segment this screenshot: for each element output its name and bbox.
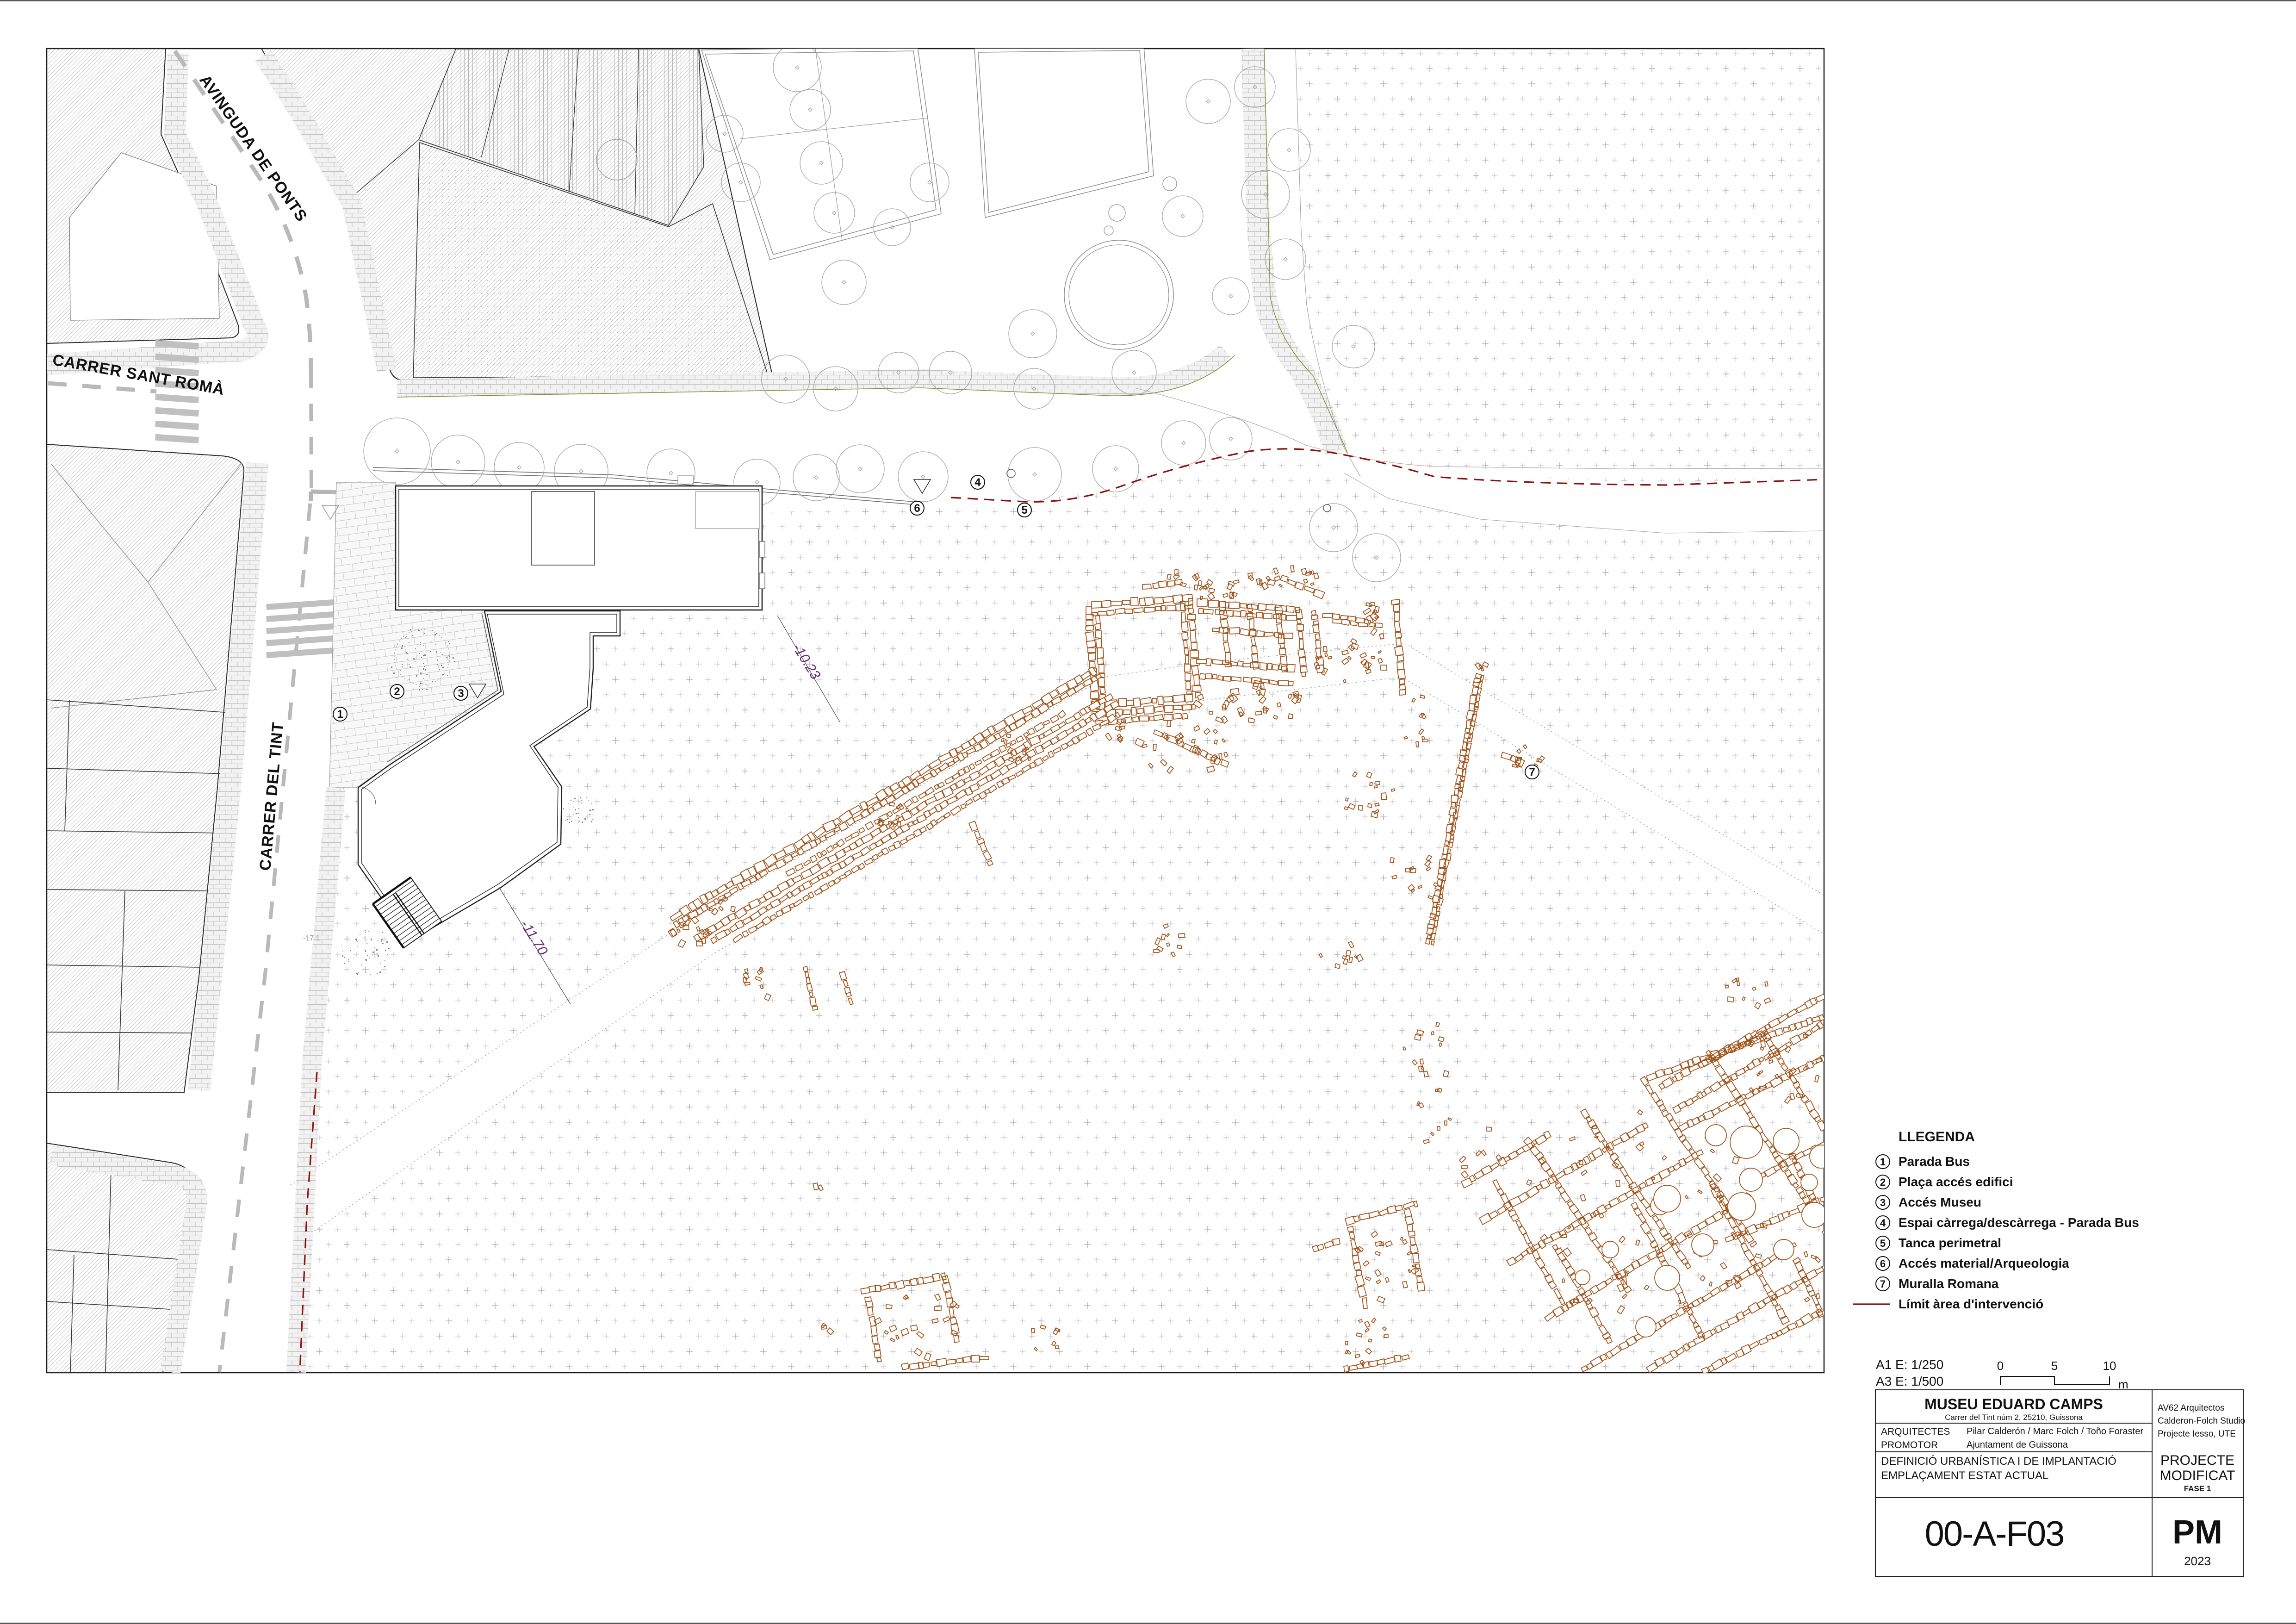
svg-text:-17.1: -17.1 <box>303 934 320 942</box>
svg-text:Límit àrea d'intervenció: Límit àrea d'intervenció <box>1899 1297 2043 1311</box>
svg-text:2: 2 <box>394 685 400 698</box>
svg-text:5: 5 <box>1880 1238 1886 1249</box>
svg-text:AV62 Arquitectos: AV62 Arquitectos <box>2158 1403 2224 1413</box>
svg-text:A3 E: 1/500: A3 E: 1/500 <box>1876 1374 1943 1388</box>
svg-text:FASE 1: FASE 1 <box>2184 1484 2211 1493</box>
svg-text:ARQUITECTES: ARQUITECTES <box>1881 1426 1950 1437</box>
svg-text:EMPLAÇAMENT ESTAT ACTUAL: EMPLAÇAMENT ESTAT ACTUAL <box>1881 1469 2048 1482</box>
svg-text:2023: 2023 <box>2184 1554 2211 1568</box>
svg-text:7: 7 <box>1880 1278 1886 1290</box>
svg-text:Projecte Iesso, UTE: Projecte Iesso, UTE <box>2158 1429 2236 1439</box>
svg-text:Plaça accés edifici: Plaça accés edifici <box>1899 1175 2013 1189</box>
svg-text:Accés material/Arqueologia: Accés material/Arqueologia <box>1899 1256 2069 1270</box>
svg-text:m: m <box>2118 1377 2128 1391</box>
svg-text:Tanca perimetral: Tanca perimetral <box>1899 1236 2001 1250</box>
svg-text:5: 5 <box>2051 1359 2058 1373</box>
svg-text:4: 4 <box>974 476 981 489</box>
svg-text:3: 3 <box>1880 1197 1886 1208</box>
svg-text:PM: PM <box>2172 1514 2222 1551</box>
svg-text:Pilar Calderón / Marc Folch /: Pilar Calderón / Marc Folch / Toño Foras… <box>1967 1426 2143 1437</box>
svg-text:MUSEU EDUARD CAMPS: MUSEU EDUARD CAMPS <box>1924 1396 2103 1412</box>
svg-text:00-A-F03: 00-A-F03 <box>1925 1514 2064 1554</box>
svg-text:1: 1 <box>337 708 343 721</box>
svg-text:Carrer del Tint núm 2, 25210,: Carrer del Tint núm 2, 25210, Guissona <box>1945 1413 2083 1422</box>
svg-text:1: 1 <box>1880 1156 1886 1168</box>
svg-text:5: 5 <box>1021 504 1027 516</box>
svg-text:Parada Bus: Parada Bus <box>1899 1154 1970 1169</box>
svg-text:Ajuntament de Guissona: Ajuntament de Guissona <box>1967 1440 2068 1450</box>
svg-text:6: 6 <box>1880 1258 1886 1269</box>
svg-text:DEFINICIÓ URBANÍSTICA I DE IMP: DEFINICIÓ URBANÍSTICA I DE IMPLANTACIÓ <box>1881 1455 2116 1468</box>
svg-text:LLEGENDA: LLEGENDA <box>1899 1129 1975 1145</box>
svg-text:6: 6 <box>914 502 920 515</box>
svg-text:3: 3 <box>458 687 464 700</box>
svg-text:Calderon-Folch Studio: Calderon-Folch Studio <box>2158 1416 2245 1426</box>
svg-text:Espai càrrega/descàrrega - Par: Espai càrrega/descàrrega - Parada Bus <box>1899 1215 2139 1230</box>
svg-text:7: 7 <box>1529 766 1535 778</box>
svg-text:10: 10 <box>2103 1359 2116 1373</box>
svg-text:PROMOTOR: PROMOTOR <box>1881 1440 1938 1450</box>
svg-text:MODIFICAT: MODIFICAT <box>2160 1468 2235 1483</box>
svg-text:2: 2 <box>1880 1176 1886 1188</box>
svg-text:Muralla Romana: Muralla Romana <box>1899 1276 1999 1291</box>
svg-text:0: 0 <box>1997 1359 2004 1373</box>
svg-text:Accés Museu: Accés Museu <box>1899 1195 1981 1209</box>
svg-text:4: 4 <box>1880 1217 1886 1229</box>
svg-text:PROJECTE: PROJECTE <box>2160 1453 2234 1468</box>
svg-text:A1 E: 1/250: A1 E: 1/250 <box>1876 1357 1943 1372</box>
